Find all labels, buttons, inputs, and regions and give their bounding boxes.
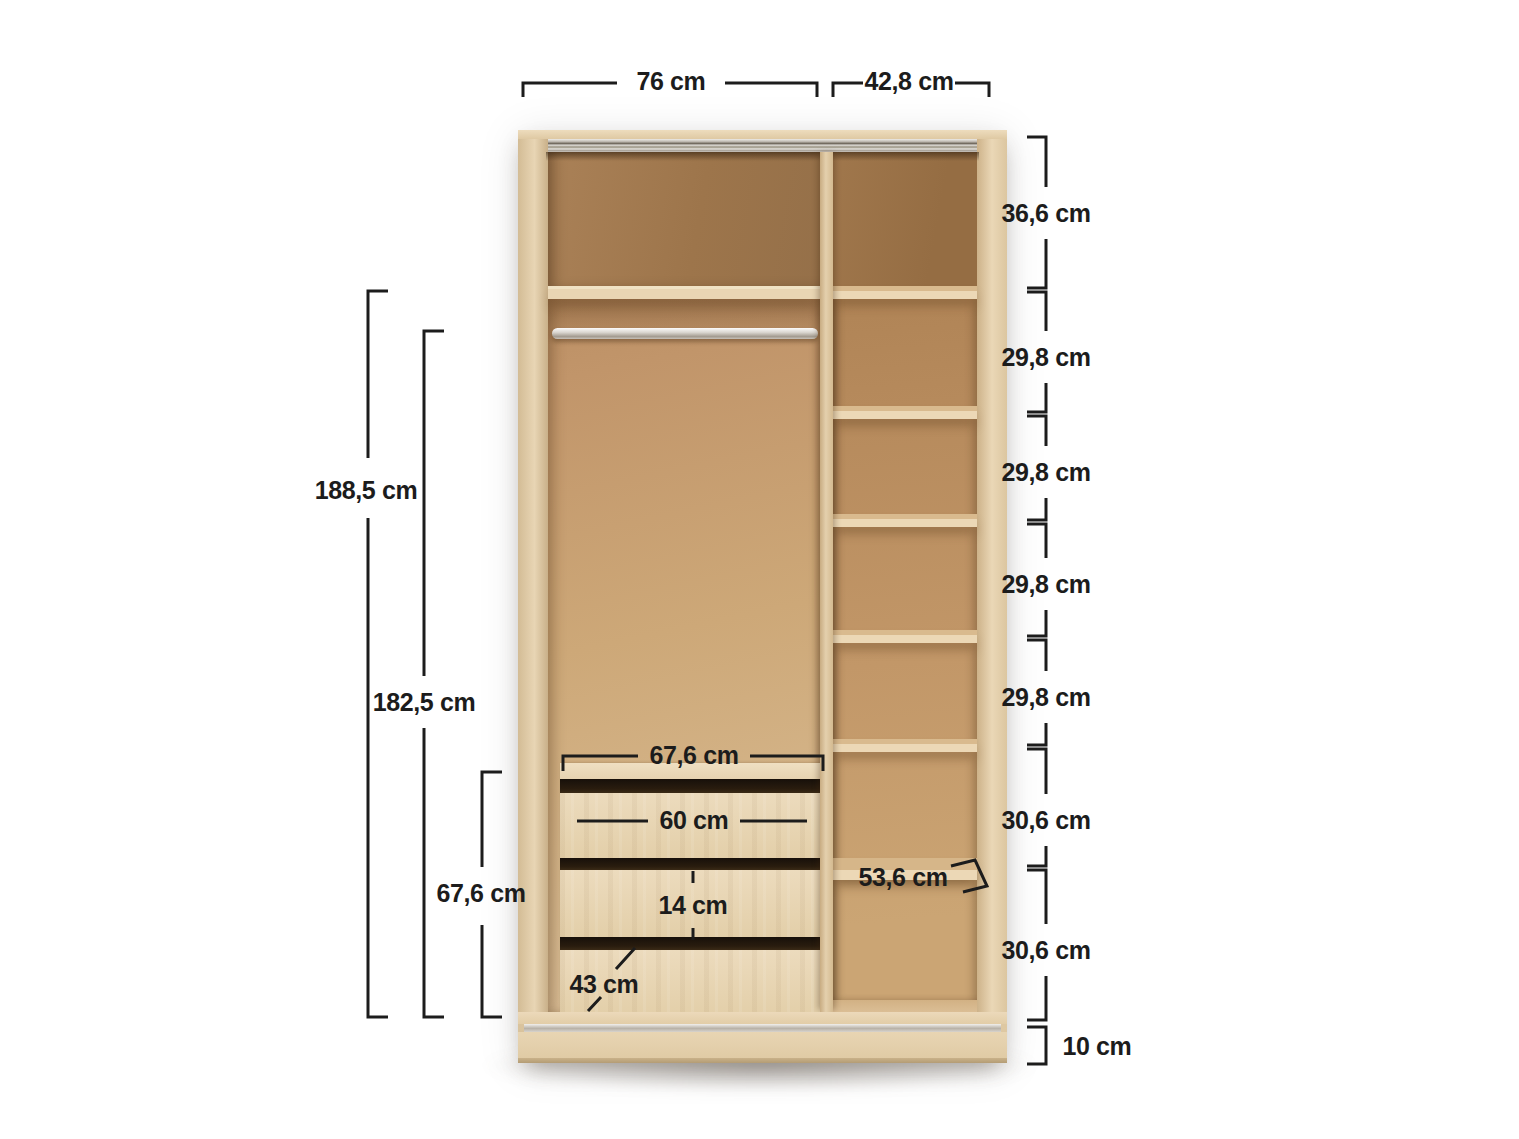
- dim-shelf-depth: 53,6 cm: [859, 863, 948, 892]
- dim-right-height-6: 30,6 cm: [1002, 806, 1091, 835]
- right-shelf-2: [833, 406, 977, 419]
- right-shelf-5: [833, 739, 977, 752]
- dim-right-height-3: 29,8 cm: [1002, 458, 1091, 487]
- dim-drawer-inner-width: 60 cm: [660, 806, 729, 835]
- right-shelf-1: [833, 286, 977, 299]
- center-divider-panel: [820, 152, 833, 1012]
- wardrobe-floor-edge: [518, 1012, 1007, 1024]
- dim-left-drawer-unit-height: 67,6 cm: [437, 879, 526, 908]
- wardrobe-frame: [518, 130, 1007, 1063]
- dim-left-interior-total: 188,5 cm: [315, 476, 417, 505]
- right-shelf-4: [833, 630, 977, 643]
- right-top-compartment-back: [833, 152, 977, 286]
- dim-drawer-depth: 43 cm: [570, 970, 639, 999]
- plinth-bottom-edge: [518, 1058, 1007, 1063]
- drawer-gap-3: [560, 937, 820, 950]
- dim-right-height-1: 36,6 cm: [1002, 199, 1091, 228]
- dim-right-height-5: 29,8 cm: [1002, 683, 1091, 712]
- dim-drawer-inner-height: 14 cm: [659, 891, 728, 920]
- dim-right-height-4: 29,8 cm: [1002, 570, 1091, 599]
- dim-left-hanging-space: 182,5 cm: [373, 688, 475, 717]
- dim-drawer-width: 67,6 cm: [650, 741, 739, 770]
- bottom-sliding-track: [524, 1024, 1001, 1032]
- left-section-top-shelf: [548, 286, 820, 299]
- right-shelf-3: [833, 514, 977, 527]
- dim-right-height-7: 30,6 cm: [1002, 936, 1091, 965]
- dim-top-left-width: 76 cm: [637, 67, 706, 96]
- dim-right-height-2: 29,8 cm: [1002, 343, 1091, 372]
- track-shadow: [546, 152, 979, 161]
- drawer-gap-2: [560, 858, 820, 870]
- right-section-floor: [833, 1000, 977, 1012]
- drawer-gap-1: [560, 779, 820, 793]
- left-top-compartment-back: [548, 152, 820, 286]
- dim-plinth-height: 10 cm: [1063, 1032, 1132, 1061]
- wardrobe-dimension-diagram: 76 cm 42,8 cm 36,6 cm 29,8 cm 29,8 cm 29…: [0, 0, 1519, 1139]
- dim-top-right-width: 42,8 cm: [865, 67, 954, 96]
- dim-line-left-hanging: [424, 331, 444, 1017]
- sliding-door-track: [526, 139, 999, 152]
- hanging-rail: [552, 328, 818, 339]
- dim-line-left-total: [368, 291, 388, 1017]
- wardrobe-top-panel: [518, 130, 1007, 139]
- plinth: [518, 1032, 1007, 1058]
